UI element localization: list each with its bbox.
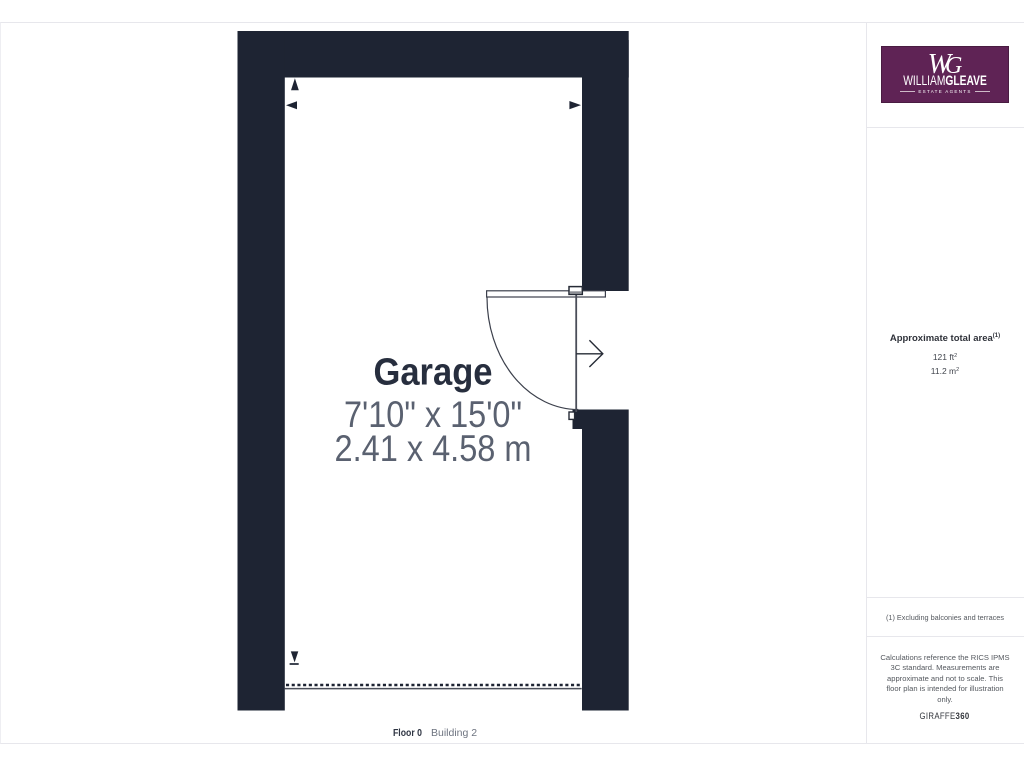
svg-text:Building 2: Building 2 bbox=[431, 727, 477, 739]
svg-text:2.41 x 4.58 m: 2.41 x 4.58 m bbox=[335, 428, 532, 469]
svg-text:Garage: Garage bbox=[374, 352, 493, 394]
svg-text:Floor 0: Floor 0 bbox=[393, 727, 422, 739]
